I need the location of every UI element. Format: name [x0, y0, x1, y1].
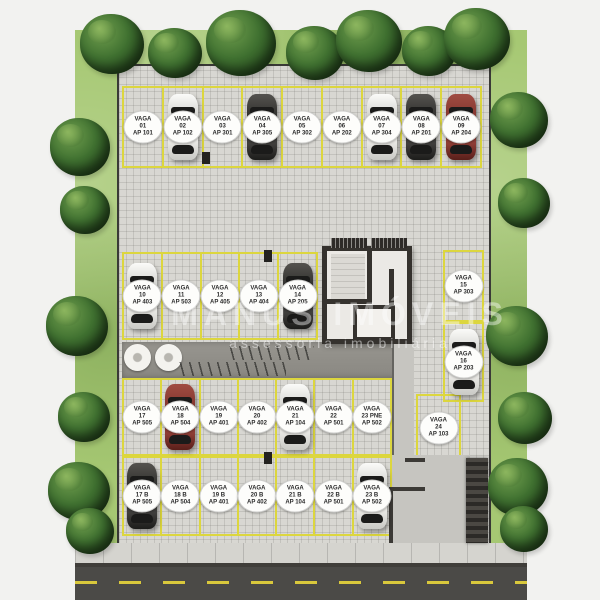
apartment-number: AP 203	[454, 366, 474, 373]
parking-space: VAGA19 BAP 401	[199, 456, 239, 536]
step-wall	[405, 458, 425, 462]
apartment-number: AP 404	[249, 300, 269, 307]
parking-space: VAGA08AP 201	[400, 86, 442, 168]
apartment-number: AP 505	[132, 500, 152, 507]
space-number: 15	[460, 282, 467, 289]
parking-row-third: VAGA17AP 505VAGA18AP 504VAGA19AP 401VAGA…	[122, 378, 392, 456]
badge-word: VAGA	[172, 406, 189, 413]
badge-word: VAGA	[373, 116, 390, 123]
space-badge: VAGA22AP 501	[314, 401, 353, 434]
apartment-number: AP 204	[451, 131, 471, 138]
space-badge: VAGA15AP 303	[444, 270, 483, 303]
parking-space: VAGA15AP 303	[443, 250, 484, 322]
rear-window	[284, 435, 306, 444]
parking-space: VAGA16AP 203	[443, 322, 484, 402]
parking-row-bottom: VAGA17 BAP 505VAGA18 BAP 504VAGA19 BAP 4…	[122, 456, 392, 536]
space-number: 21 B	[289, 492, 302, 499]
space-badge: VAGA16AP 203	[444, 346, 483, 379]
tree	[286, 26, 344, 80]
parking-space: VAGA20AP 402	[237, 378, 277, 456]
parking-space: VAGA11AP 503	[161, 252, 202, 340]
structural-column	[264, 250, 272, 262]
rear-window	[410, 145, 432, 154]
badge-word: VAGA	[210, 485, 227, 492]
space-badge: VAGA23 PNEAP 502	[352, 401, 391, 434]
badge-word: VAGA	[254, 116, 271, 123]
parking-space: VAGA05AP 302	[281, 86, 323, 168]
space-number: 12	[217, 292, 224, 299]
apartment-number: AP 504	[170, 421, 190, 428]
rear-window	[361, 514, 383, 523]
tree	[58, 392, 110, 442]
vent-grid-icon	[371, 238, 407, 248]
apartment-number: AP 405	[210, 300, 230, 307]
parking-space: VAGA21AP 104	[275, 378, 315, 456]
space-number: 04	[259, 123, 266, 130]
space-number: 22 B	[327, 492, 340, 499]
space-badge: VAGA21 BAP 104	[276, 480, 315, 513]
space-number: 08	[418, 123, 425, 130]
apartment-number: AP 403	[132, 300, 152, 307]
structural-column	[202, 152, 210, 164]
parking-row-top: VAGA01AP 101VAGA02AP 102VAGA03AP 301VAGA…	[122, 86, 482, 168]
tree	[498, 392, 552, 444]
interior-wall	[367, 251, 372, 303]
space-badge: VAGA01AP 101	[123, 111, 162, 144]
apartment-number: AP 501	[324, 500, 344, 507]
elevator-shaft	[353, 305, 395, 341]
tree	[490, 92, 548, 148]
space-number: 17	[139, 413, 146, 420]
tree	[444, 8, 510, 70]
tree	[80, 14, 144, 74]
space-badge: VAGA17AP 505	[123, 401, 162, 434]
rear-window	[169, 435, 191, 444]
structural-column	[264, 452, 272, 464]
badge-word: VAGA	[333, 116, 350, 123]
badge-word: VAGA	[134, 485, 151, 492]
bike-rack-row	[178, 362, 286, 376]
parking-space: VAGA21 BAP 104	[275, 456, 315, 536]
apartment-number: AP 401	[209, 500, 229, 507]
space-number: 01	[140, 123, 147, 130]
tree	[336, 10, 402, 72]
parking-space: VAGA24AP 103	[416, 394, 461, 462]
parking-space: VAGA19AP 401	[199, 378, 239, 456]
space-badge: VAGA12AP 405	[200, 280, 239, 313]
badge-word: VAGA	[174, 116, 191, 123]
space-number: 03	[219, 123, 226, 130]
space-badge: VAGA08AP 201	[402, 111, 441, 144]
rear-window	[371, 145, 393, 154]
space-number: 19 B	[212, 492, 225, 499]
space-badge: VAGA07AP 304	[362, 111, 401, 144]
parking-space: VAGA10AP 403	[122, 252, 163, 340]
apartment-number: AP 402	[247, 500, 267, 507]
parking-space: VAGA07AP 304	[361, 86, 403, 168]
apartment-number: AP 205	[288, 300, 308, 307]
tree	[498, 178, 550, 228]
space-badge: VAGA06AP 202	[322, 111, 361, 144]
interior-wall	[327, 299, 372, 304]
badge-word: VAGA	[455, 351, 472, 358]
space-number: 16	[460, 358, 467, 365]
space-badge: VAGA10AP 403	[123, 280, 162, 313]
apartment-number: AP 502	[362, 421, 382, 428]
parking-space: VAGA17AP 505	[122, 378, 162, 456]
apartment-number: AP 301	[213, 131, 233, 138]
tree	[486, 306, 548, 366]
space-badge: VAGA09AP 204	[442, 111, 481, 144]
parking-space: VAGA18AP 504	[160, 378, 200, 456]
apartment-number: AP 502	[362, 500, 382, 507]
apartment-number: AP 202	[332, 131, 352, 138]
space-number: 18 B	[174, 492, 187, 499]
parking-space: VAGA17 BAP 505	[122, 456, 162, 536]
walkway	[392, 344, 414, 462]
badge-word: VAGA	[134, 285, 151, 292]
tree	[46, 296, 108, 356]
space-number: 11	[178, 292, 184, 299]
parking-space: VAGA14AP 205	[277, 252, 318, 340]
street-center-line	[75, 581, 527, 584]
apartment-number: AP 402	[247, 421, 267, 428]
rear-window	[453, 380, 475, 389]
space-badge: VAGA11AP 503	[162, 280, 201, 313]
space-number: 13	[255, 292, 262, 299]
rear-window	[172, 145, 194, 154]
parking-space-15: VAGA15AP 303	[443, 250, 484, 322]
tree	[500, 506, 548, 552]
badge-word: VAGA	[325, 406, 342, 413]
badge-word: VAGA	[294, 116, 311, 123]
badge-word: VAGA	[249, 406, 266, 413]
badge-word: VAGA	[212, 285, 229, 292]
space-number: 18	[177, 413, 184, 420]
parking-space-24: VAGA24AP 103	[416, 394, 461, 462]
badge-word: VAGA	[413, 116, 430, 123]
parking-space: VAGA04AP 305	[241, 86, 283, 168]
space-number: 23 B	[365, 492, 378, 499]
badge-word: VAGA	[453, 116, 470, 123]
apartment-number: AP 104	[285, 500, 305, 507]
parking-space: VAGA02AP 102	[162, 86, 204, 168]
apartment-number: AP 505	[132, 421, 152, 428]
space-number: 23 PNE	[361, 413, 382, 420]
space-number: 02	[179, 123, 186, 130]
entrance-gate	[466, 458, 488, 543]
space-badge: VAGA22 BAP 501	[314, 480, 353, 513]
badge-word: VAGA	[287, 406, 304, 413]
tree	[60, 186, 110, 234]
space-badge: VAGA20AP 402	[237, 401, 276, 434]
stairwell	[331, 254, 365, 299]
space-number: 24	[435, 424, 442, 431]
space-badge: VAGA02AP 102	[163, 111, 202, 144]
parking-space: VAGA23 BAP 502	[352, 456, 392, 536]
rear-window	[131, 514, 153, 523]
space-number: 07	[378, 123, 385, 130]
parking-space: VAGA22 BAP 501	[313, 456, 353, 536]
rear-window	[450, 145, 472, 154]
badge-word: VAGA	[455, 275, 472, 282]
space-badge: VAGA18AP 504	[161, 401, 200, 434]
space-badge: VAGA14AP 205	[278, 280, 317, 313]
badge-word: VAGA	[214, 116, 231, 123]
space-number: 17 B	[136, 492, 149, 499]
space-number: 05	[299, 123, 306, 130]
apartment-number: AP 302	[292, 131, 312, 138]
space-number: 14	[294, 292, 301, 299]
badge-word: VAGA	[210, 406, 227, 413]
apartment-number: AP 104	[285, 421, 305, 428]
space-badge: VAGA17 BAP 505	[123, 480, 162, 513]
rear-window	[287, 314, 309, 323]
apartment-number: AP 504	[170, 500, 190, 507]
space-badge: VAGA24AP 103	[419, 412, 458, 445]
round-table	[124, 344, 151, 371]
parking-space: VAGA20 BAP 402	[237, 456, 277, 536]
space-badge: VAGA13AP 404	[239, 280, 278, 313]
badge-word: VAGA	[249, 485, 266, 492]
space-number: 20 B	[251, 492, 264, 499]
space-number: 22	[330, 413, 337, 420]
parking-space: VAGA06AP 202	[321, 86, 363, 168]
apartment-number: AP 503	[171, 300, 191, 307]
rear-window	[251, 145, 273, 154]
space-number: 19	[215, 413, 222, 420]
space-number: 06	[338, 123, 345, 130]
rear-window	[131, 314, 153, 323]
badge-word: VAGA	[325, 485, 342, 492]
parking-space: VAGA01AP 101	[122, 86, 164, 168]
apartment-number: AP 401	[209, 421, 229, 428]
tree	[50, 118, 110, 176]
space-number: 09	[458, 123, 465, 130]
space-number: 20	[254, 413, 261, 420]
tree	[148, 28, 202, 78]
parking-space: VAGA13AP 404	[238, 252, 279, 340]
badge-word: VAGA	[287, 485, 304, 492]
parking-space: VAGA09AP 204	[440, 86, 482, 168]
space-badge: VAGA20 BAP 402	[237, 480, 276, 513]
bike-rack-row	[228, 346, 314, 360]
apartment-number: AP 102	[173, 131, 193, 138]
space-badge: VAGA19AP 401	[199, 401, 238, 434]
space-badge: VAGA21AP 104	[276, 401, 315, 434]
space-badge: VAGA18 BAP 504	[161, 480, 200, 513]
parking-space: VAGA23 PNEAP 502	[352, 378, 392, 456]
apartment-number: AP 305	[252, 131, 272, 138]
space-badge: VAGA19 BAP 401	[199, 480, 238, 513]
tree	[206, 10, 276, 76]
building-core	[322, 246, 412, 344]
badge-word: VAGA	[363, 485, 380, 492]
apartment-number: AP 101	[133, 131, 153, 138]
space-number: 10	[139, 292, 146, 299]
space-badge: VAGA05AP 302	[283, 111, 322, 144]
vent-grid-icon	[331, 238, 367, 248]
badge-word: VAGA	[430, 417, 447, 424]
apartment-number: AP 103	[429, 432, 449, 439]
parking-space: VAGA22AP 501	[313, 378, 353, 456]
space-badge: VAGA23 BAP 502	[352, 480, 391, 513]
parking-space: VAGA12AP 405	[200, 252, 241, 340]
badge-word: VAGA	[363, 406, 380, 413]
apartment-number: AP 304	[372, 131, 392, 138]
apartment-number: AP 303	[454, 290, 474, 297]
parking-space-16: VAGA16AP 203	[443, 322, 484, 402]
badge-word: VAGA	[134, 406, 151, 413]
space-badge: VAGA04AP 305	[243, 111, 282, 144]
site-plan: VAGA01AP 101VAGA02AP 102VAGA03AP 301VAGA…	[0, 0, 600, 600]
interior-wall	[389, 269, 394, 305]
space-number: 21	[292, 413, 299, 420]
tree	[66, 508, 114, 554]
parking-row-middle: VAGA10AP 403VAGA11AP 503VAGA12AP 405VAGA…	[122, 252, 318, 340]
badge-word: VAGA	[173, 285, 190, 292]
entry-plaza	[392, 455, 470, 543]
badge-word: VAGA	[289, 285, 306, 292]
badge-word: VAGA	[134, 116, 151, 123]
badge-word: VAGA	[172, 485, 189, 492]
step-wall	[389, 487, 425, 491]
space-badge: VAGA03AP 301	[203, 111, 242, 144]
apartment-number: AP 201	[411, 131, 431, 138]
parking-space: VAGA18 BAP 504	[160, 456, 200, 536]
apartment-number: AP 501	[324, 421, 344, 428]
badge-word: VAGA	[250, 285, 267, 292]
